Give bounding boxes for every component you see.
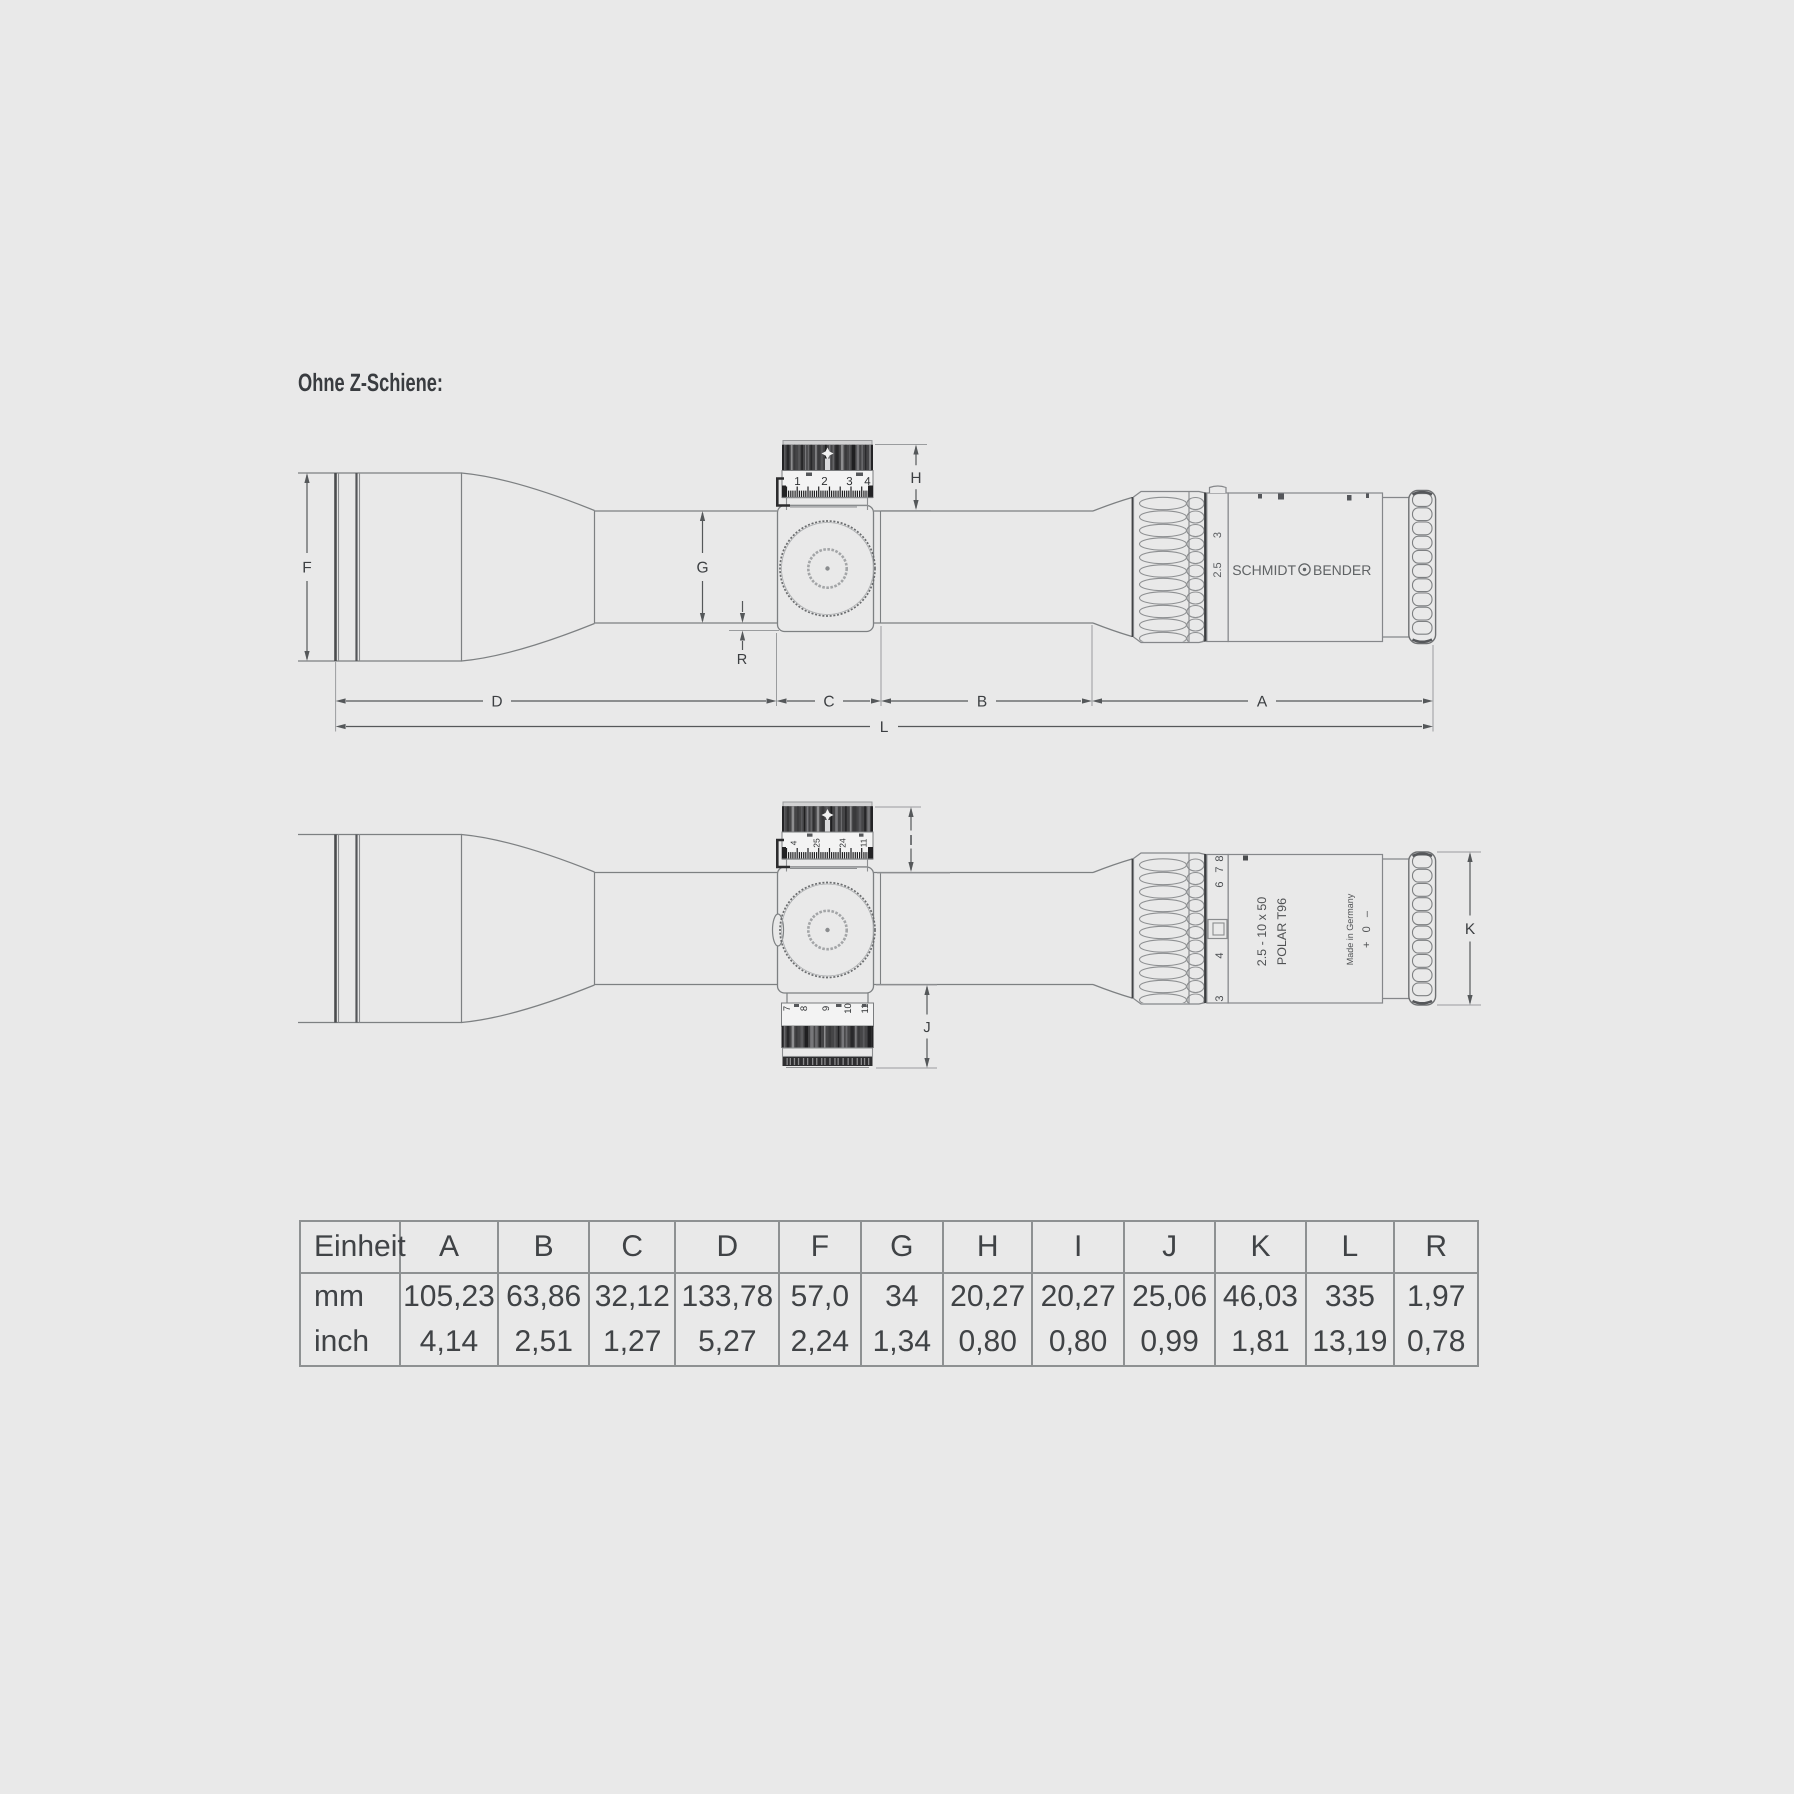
svg-text:A: A (1257, 694, 1268, 711)
svg-text:+ 0 –: + 0 – (1361, 910, 1373, 948)
svg-text:24: 24 (838, 838, 848, 848)
svg-text:3: 3 (846, 476, 852, 488)
svg-text:B: B (977, 694, 987, 711)
svg-text:R: R (737, 652, 747, 668)
svg-text:8: 8 (799, 1006, 810, 1011)
svg-text:2: 2 (821, 476, 827, 488)
svg-text:F: F (302, 560, 311, 577)
svg-text:7: 7 (782, 1006, 793, 1011)
svg-text:L: L (880, 719, 889, 736)
svg-text:SCHMIDT: SCHMIDT (1232, 562, 1296, 578)
svg-text:C: C (823, 694, 834, 711)
svg-text:10: 10 (843, 1003, 854, 1014)
svg-text:H: H (910, 470, 921, 487)
svg-text:BENDER: BENDER (1313, 562, 1371, 578)
svg-text:9: 9 (821, 1006, 832, 1011)
svg-text:25: 25 (812, 838, 822, 848)
svg-text:K: K (1465, 921, 1476, 938)
svg-text:7: 7 (1214, 866, 1226, 872)
svg-text:8: 8 (1214, 855, 1226, 861)
svg-text:3: 3 (1212, 532, 1224, 538)
svg-text:Made in Germany: Made in Germany (1345, 893, 1355, 965)
svg-text:11: 11 (859, 838, 869, 847)
svg-text:J: J (923, 1020, 930, 1036)
svg-text:4: 4 (789, 840, 799, 845)
svg-text:POLAR T96: POLAR T96 (1275, 898, 1289, 965)
svg-text:1: 1 (794, 476, 800, 488)
svg-text:2.5 - 10 x 50: 2.5 - 10 x 50 (1255, 897, 1269, 967)
svg-text:Ohne Z-Schiene:: Ohne Z-Schiene: (298, 369, 443, 397)
svg-text:6: 6 (1214, 881, 1226, 887)
svg-text:3: 3 (1214, 995, 1226, 1001)
svg-text:I: I (909, 833, 913, 849)
svg-text:D: D (491, 694, 502, 711)
svg-text:G: G (696, 560, 708, 577)
svg-text:2.5: 2.5 (1212, 562, 1224, 577)
svg-text:4: 4 (1214, 952, 1226, 958)
